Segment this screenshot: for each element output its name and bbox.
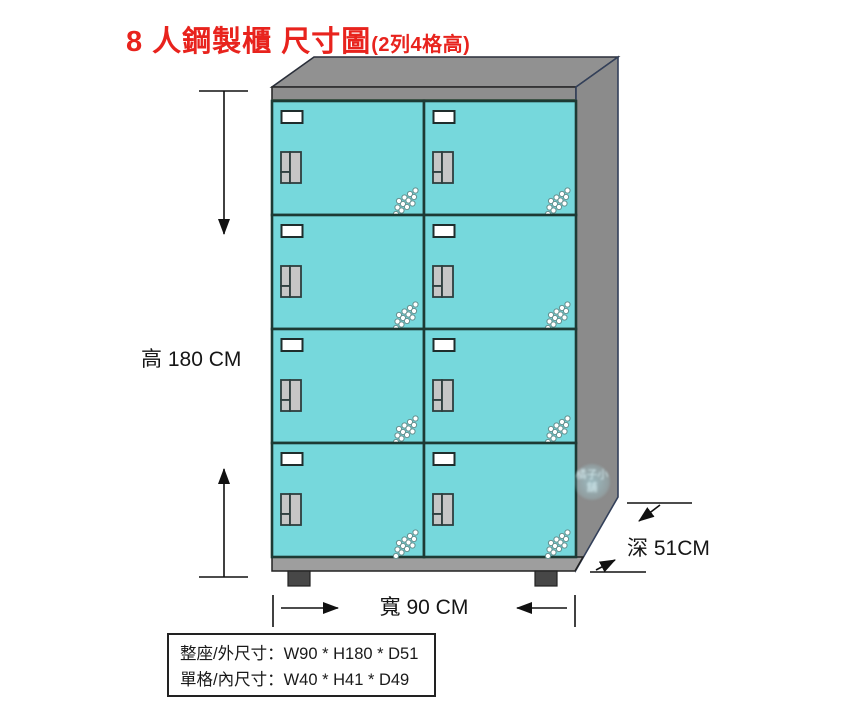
spec-box: 整座/外尺寸：W90 * H180 * D51 單格/內尺寸：W40 * H41… [167, 633, 436, 697]
door-name-tag [434, 453, 455, 465]
locker-door [424, 443, 576, 559]
cabinet-foot-left [288, 571, 310, 586]
watermark-logo: 橘子小舖 [574, 464, 610, 500]
door-name-tag [282, 111, 303, 123]
locker-door [272, 101, 424, 217]
door-name-tag [282, 339, 303, 351]
door-handle [433, 494, 453, 525]
door-handle [433, 152, 453, 183]
door-name-tag [434, 339, 455, 351]
locker-door [424, 329, 576, 445]
height-dimension-label: 高 180 CM [141, 343, 241, 373]
height-dimension-lines [199, 91, 248, 577]
locker-doors [272, 101, 576, 559]
door-handle [433, 380, 453, 411]
locker-door [424, 215, 576, 331]
door-handle [281, 494, 301, 525]
door-name-tag [282, 453, 303, 465]
door-handle [281, 152, 301, 183]
door-handle [433, 266, 453, 297]
locker-door [272, 329, 424, 445]
spec-line-inner: 單格/內尺寸：W40 * H41 * D49 [180, 667, 434, 693]
door-name-tag [434, 225, 455, 237]
cabinet-foot-right [535, 571, 557, 586]
locker-door [424, 101, 576, 217]
title-main: 8 人鋼製櫃 尺寸圖 [126, 18, 371, 60]
locker-door [272, 215, 424, 331]
locker-door [272, 443, 424, 559]
door-handle [281, 266, 301, 297]
door-name-tag [282, 225, 303, 237]
page: 8 人鋼製櫃 尺寸圖(2列4格高) [0, 0, 843, 720]
title-sub: (2列4格高) [371, 28, 470, 57]
spec-line-outer: 整座/外尺寸：W90 * H180 * D51 [180, 641, 434, 667]
door-name-tag [434, 111, 455, 123]
door-handle [281, 380, 301, 411]
cabinet-base [272, 557, 583, 586]
cabinet-top-panel [272, 57, 618, 100]
width-dimension-label: 寬 90 CM [344, 591, 504, 621]
page-title: 8 人鋼製櫃 尺寸圖(2列4格高) [126, 18, 470, 60]
depth-dimension-label: 深 51CM [627, 532, 710, 562]
